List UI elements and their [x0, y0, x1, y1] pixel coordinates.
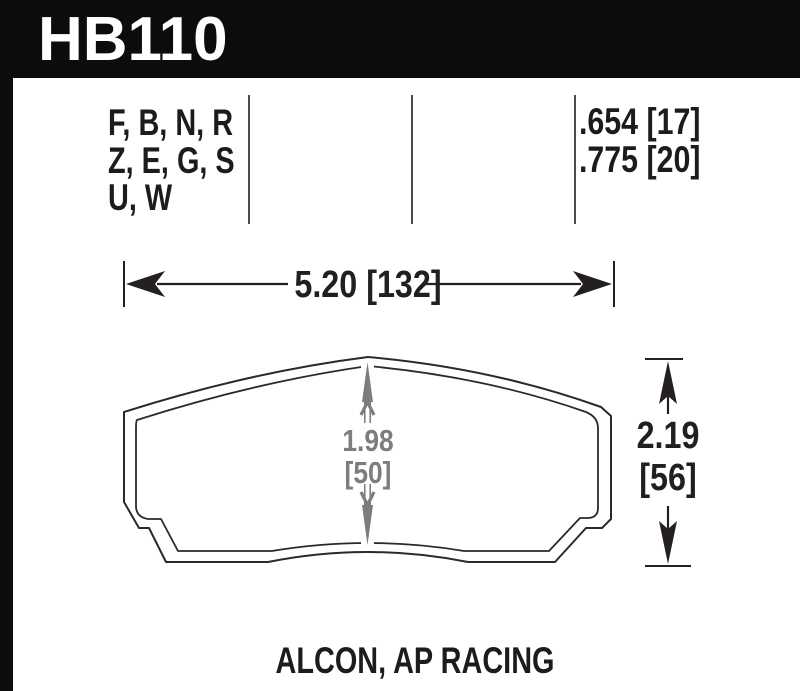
center-height-label-inches: 1.98 [324, 426, 412, 456]
pad-drawing [0, 0, 800, 691]
width-dimension-label: 5.20 [132] [275, 266, 462, 304]
applications-label: ALCON, AP RACING [259, 642, 571, 679]
height-dimension-label-inches: 2.19 [624, 417, 712, 455]
center-height-label-mm: [50] [324, 456, 412, 489]
height-dimension-label-mm: [56] [624, 457, 712, 499]
